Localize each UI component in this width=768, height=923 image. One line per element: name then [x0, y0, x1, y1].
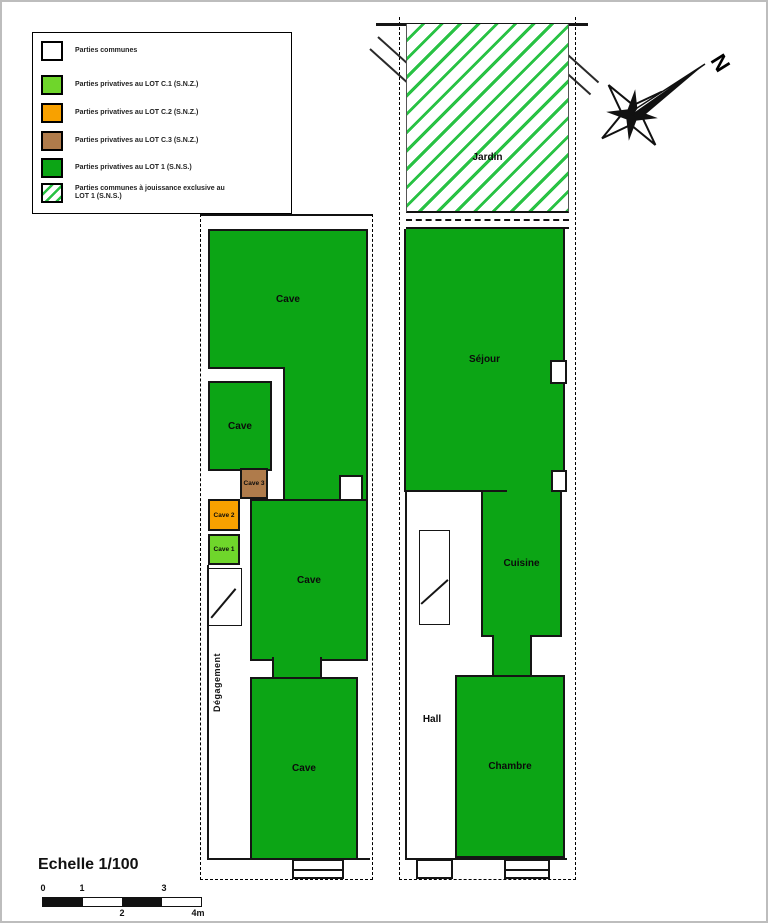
room-label-chambre: Chambre [488, 761, 531, 772]
legend-label: Parties privatives au LOT 1 (S.N.S.) [75, 164, 192, 173]
scale-title: Echelle 1/100 [38, 856, 139, 874]
legend-item-lot-c2: Parties privatives au LOT C.2 (S.N.Z.) [41, 103, 198, 123]
legend-item-lot-c3: Parties privatives au LOT C.3 (S.N.Z.) [41, 131, 198, 151]
compass-rose: N [577, 37, 752, 167]
wall-notch [550, 360, 567, 384]
room-label-cave-3: Cave 3 [244, 480, 265, 487]
doorway-sejour-cuisine [507, 486, 555, 498]
room-cave-1: Cave 1 [208, 534, 240, 565]
room-label-degagement: Dégagement [212, 628, 234, 736]
scale-segment [122, 898, 162, 906]
legend-swatch-common [41, 41, 63, 61]
room-label-hall: Hall [410, 714, 454, 725]
legend: Parties communes Parties privatives au L… [32, 32, 292, 214]
stair-arrow [210, 588, 236, 618]
legend-swatch-lot-c2 [41, 103, 63, 123]
room-label-jardin: Jardin [407, 152, 568, 163]
scale-bar [42, 897, 202, 907]
room-cave-bottom: Cave [250, 677, 358, 860]
scale-tick-4m: 4m [191, 908, 204, 918]
bay-divider [506, 869, 548, 871]
legend-label: Parties communes à jouissance exclusive … [75, 185, 240, 202]
room-cave-small: Cave [208, 381, 272, 471]
legend-swatch-lot-c3 [41, 131, 63, 151]
legend-label: Parties privatives au LOT C.2 (S.N.Z.) [75, 109, 198, 118]
wall [207, 565, 209, 860]
passage-cuisine-chambre [492, 635, 532, 677]
legend-label: Parties privatives au LOT C.3 (S.N.Z.) [75, 137, 198, 146]
legend-item-jouissance-exclusive: Parties communes à jouissance exclusive … [41, 183, 240, 203]
wall [207, 858, 370, 860]
legend-label: Parties privatives au LOT C.1 (S.N.Z.) [75, 81, 198, 90]
legend-label: Parties communes [75, 47, 137, 56]
floor-plan-sheet: Parties communes Parties privatives au L… [0, 0, 768, 923]
entrance-step [416, 859, 453, 879]
room-label-cave-top: Cave [276, 294, 300, 305]
scale-segment [83, 898, 123, 906]
legend-item-parties-communes: Parties communes [41, 41, 137, 61]
basement-staircase [208, 568, 242, 626]
legend-swatch-hatch [41, 183, 63, 203]
room-label-sejour: Séjour [469, 354, 500, 365]
wall-notch [339, 475, 363, 501]
stair-arrow [420, 579, 448, 604]
room-jardin: Jardin [406, 24, 569, 213]
room-sejour: Séjour [404, 229, 565, 492]
room-label-cave-small: Cave [228, 421, 252, 432]
scale-tick-2: 2 [119, 908, 124, 918]
compass-north-label: N [706, 50, 736, 77]
scale-segment [43, 898, 83, 906]
room-label-cave-bottom: Cave [292, 763, 316, 774]
window-glazing-line [406, 219, 569, 221]
room-cave-2: Cave 2 [208, 499, 240, 531]
window-band [406, 213, 569, 229]
room-cave-3: Cave 3 [240, 468, 268, 499]
scale-tick-0: 0 [40, 883, 45, 893]
bay-divider [294, 869, 342, 871]
wall [405, 492, 407, 860]
scale-segment [162, 898, 202, 906]
legend-item-lot-1: Parties privatives au LOT 1 (S.N.S.) [41, 158, 192, 178]
room-label-cuisine: Cuisine [503, 558, 539, 569]
window-bay [504, 859, 550, 879]
wall-notch [551, 470, 567, 492]
legend-item-lot-c1: Parties privatives au LOT C.1 (S.N.Z.) [41, 75, 198, 95]
scale-tick-3: 3 [161, 883, 166, 893]
ground-staircase [419, 530, 450, 625]
room-cuisine: Cuisine [481, 490, 562, 637]
room-label-cave-middle: Cave [297, 575, 321, 586]
room-label-cave-1: Cave 1 [214, 546, 235, 553]
room-label-cave-2: Cave 2 [214, 512, 235, 519]
scale-tick-1: 1 [79, 883, 84, 893]
room-cave-middle: Cave [250, 499, 368, 661]
room-chambre: Chambre [455, 675, 565, 858]
room-cave-top: Cave [208, 229, 368, 369]
window-bay [292, 859, 344, 879]
legend-swatch-lot-1 [41, 158, 63, 178]
legend-swatch-lot-c1 [41, 75, 63, 95]
